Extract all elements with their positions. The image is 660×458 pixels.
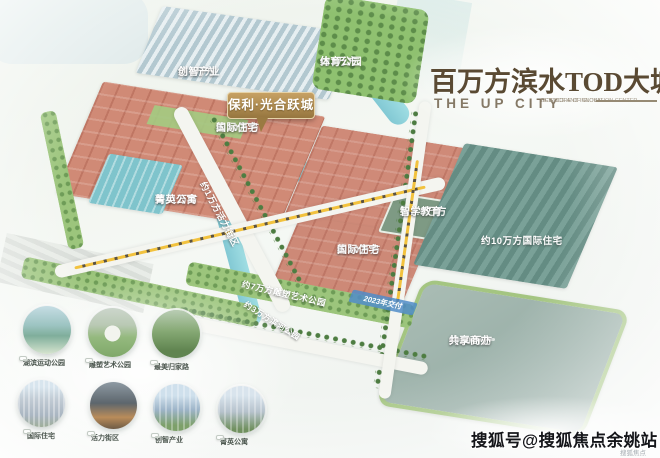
thumbnail-label: 创智产业 (151, 433, 159, 438)
page-title: 百万方滨水TOD大城 (430, 60, 660, 99)
thumbnail-label: 活力街区 (87, 431, 95, 436)
thumbnail-label: 最美归家路 (150, 360, 158, 365)
badge-pointer-tail (254, 116, 268, 133)
thumbnail-elite-apartments (218, 386, 265, 433)
tiny-english-caption (220, 438, 225, 440)
thumbnail-homecoming-path (152, 310, 200, 358)
zone-label-shared-office: 约20万方共享商办 (449, 336, 495, 341)
thumbnail-intl-residence (18, 380, 65, 427)
watermark-corner-logo: 搜狐焦点 (620, 447, 646, 457)
tiny-english-caption (91, 434, 96, 436)
tiny-english-caption (155, 436, 160, 438)
thumbnail-label: 菁英公寓 (216, 435, 224, 440)
tiny-english-caption (154, 363, 159, 365)
title-rule-line (596, 100, 657, 102)
tiny-english-caption (23, 359, 28, 361)
thumbnail-label: 雕塑艺术公园 (85, 358, 93, 363)
thumbnail-label: 国际住宅 (23, 429, 31, 434)
tiny-english-caption (27, 432, 32, 434)
project-name-badge: 保利·光合跃城 (227, 92, 315, 119)
tiny-english-caption (89, 361, 94, 363)
masterplan-rendering: 约3万方体育公园 约4万方创智产业 约20万方国际住宅 约11万方菁英公寓 约2… (0, 0, 660, 458)
thumbnail-label: 湖滨运动公园 (19, 356, 27, 361)
water-area-topleft (0, 0, 148, 64)
thumbnail-vitality-street (90, 382, 137, 429)
thumbnail-lakeside-sports-park (23, 306, 71, 354)
thumbnail-sculpture-art-park (88, 308, 137, 357)
thumbnail-innovation-industry (153, 384, 200, 431)
sports-park-area (311, 0, 430, 105)
